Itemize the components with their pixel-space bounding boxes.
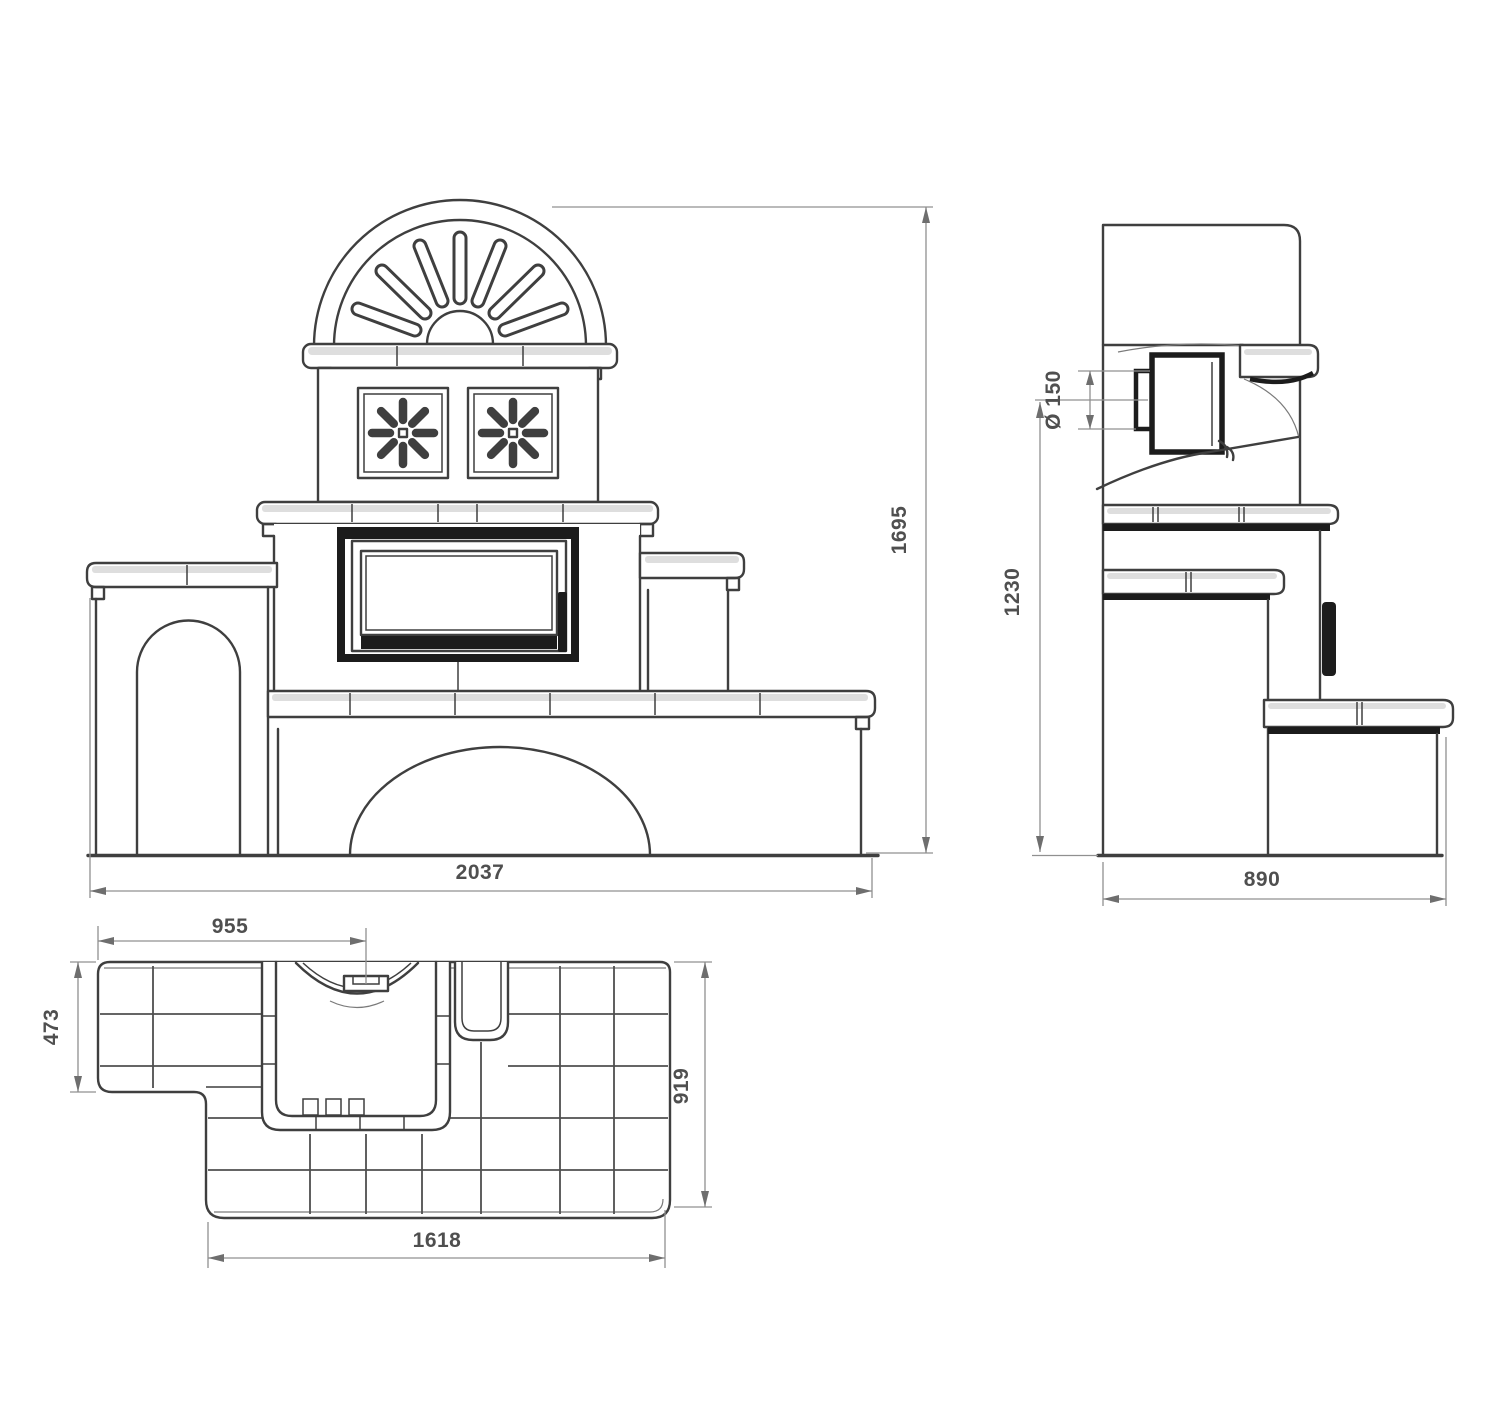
dim-label-plan-bench-depth: 473	[40, 1009, 63, 1046]
right-pedestal	[640, 553, 744, 691]
base-tier	[268, 691, 875, 855]
side-bench-slab	[1103, 570, 1284, 600]
side-door-handle	[1322, 602, 1336, 676]
smoke-path-slope	[1097, 437, 1298, 489]
dim-label-plan-body-width: 1618	[413, 1229, 462, 1252]
sun-ray-slots	[358, 238, 562, 330]
side-base-slab	[1264, 700, 1453, 734]
upper-box	[318, 368, 598, 502]
dim-plan-body-depth: 919	[670, 962, 712, 1207]
dim-label-front-height: 1695	[888, 506, 911, 555]
dim-side-depth: 890	[1103, 737, 1446, 906]
chimney-body	[1103, 225, 1300, 855]
dim-label-plan-body-depth: 919	[670, 1068, 693, 1105]
plan-right-pedestal	[455, 962, 508, 1040]
dim-flue-height: 1230	[1001, 400, 1148, 856]
technical-drawing-page: 2037 1695 890 1230	[0, 0, 1500, 1427]
front-elevation-view	[87, 200, 878, 856]
side-cornice	[1240, 345, 1318, 438]
dim-label-side-depth: 890	[1244, 868, 1281, 891]
dim-label-front-width: 2037	[456, 861, 505, 884]
flue-spigot	[1136, 355, 1233, 460]
dim-plan-bench-depth: 473	[40, 962, 96, 1092]
crown-arch	[314, 200, 606, 346]
ash-lip	[361, 636, 557, 649]
base-arch	[350, 747, 650, 855]
left-bench	[87, 563, 277, 855]
plan-view	[98, 962, 670, 1218]
door-handle	[558, 592, 567, 652]
stove-dimension-drawing: 2037 1695 890 1230	[0, 0, 1500, 1427]
side-elevation-view	[1097, 225, 1453, 856]
dim-label-plan-door-center: 955	[212, 915, 249, 938]
dim-label-flue-diameter: Ø 150	[1042, 370, 1065, 430]
half-disc-ornament	[427, 311, 493, 344]
plan-firebox-chamber	[262, 962, 450, 1130]
dim-label-flue-height: 1230	[1001, 568, 1024, 617]
side-slab-top	[1103, 505, 1338, 531]
firebox-tier	[274, 524, 640, 691]
